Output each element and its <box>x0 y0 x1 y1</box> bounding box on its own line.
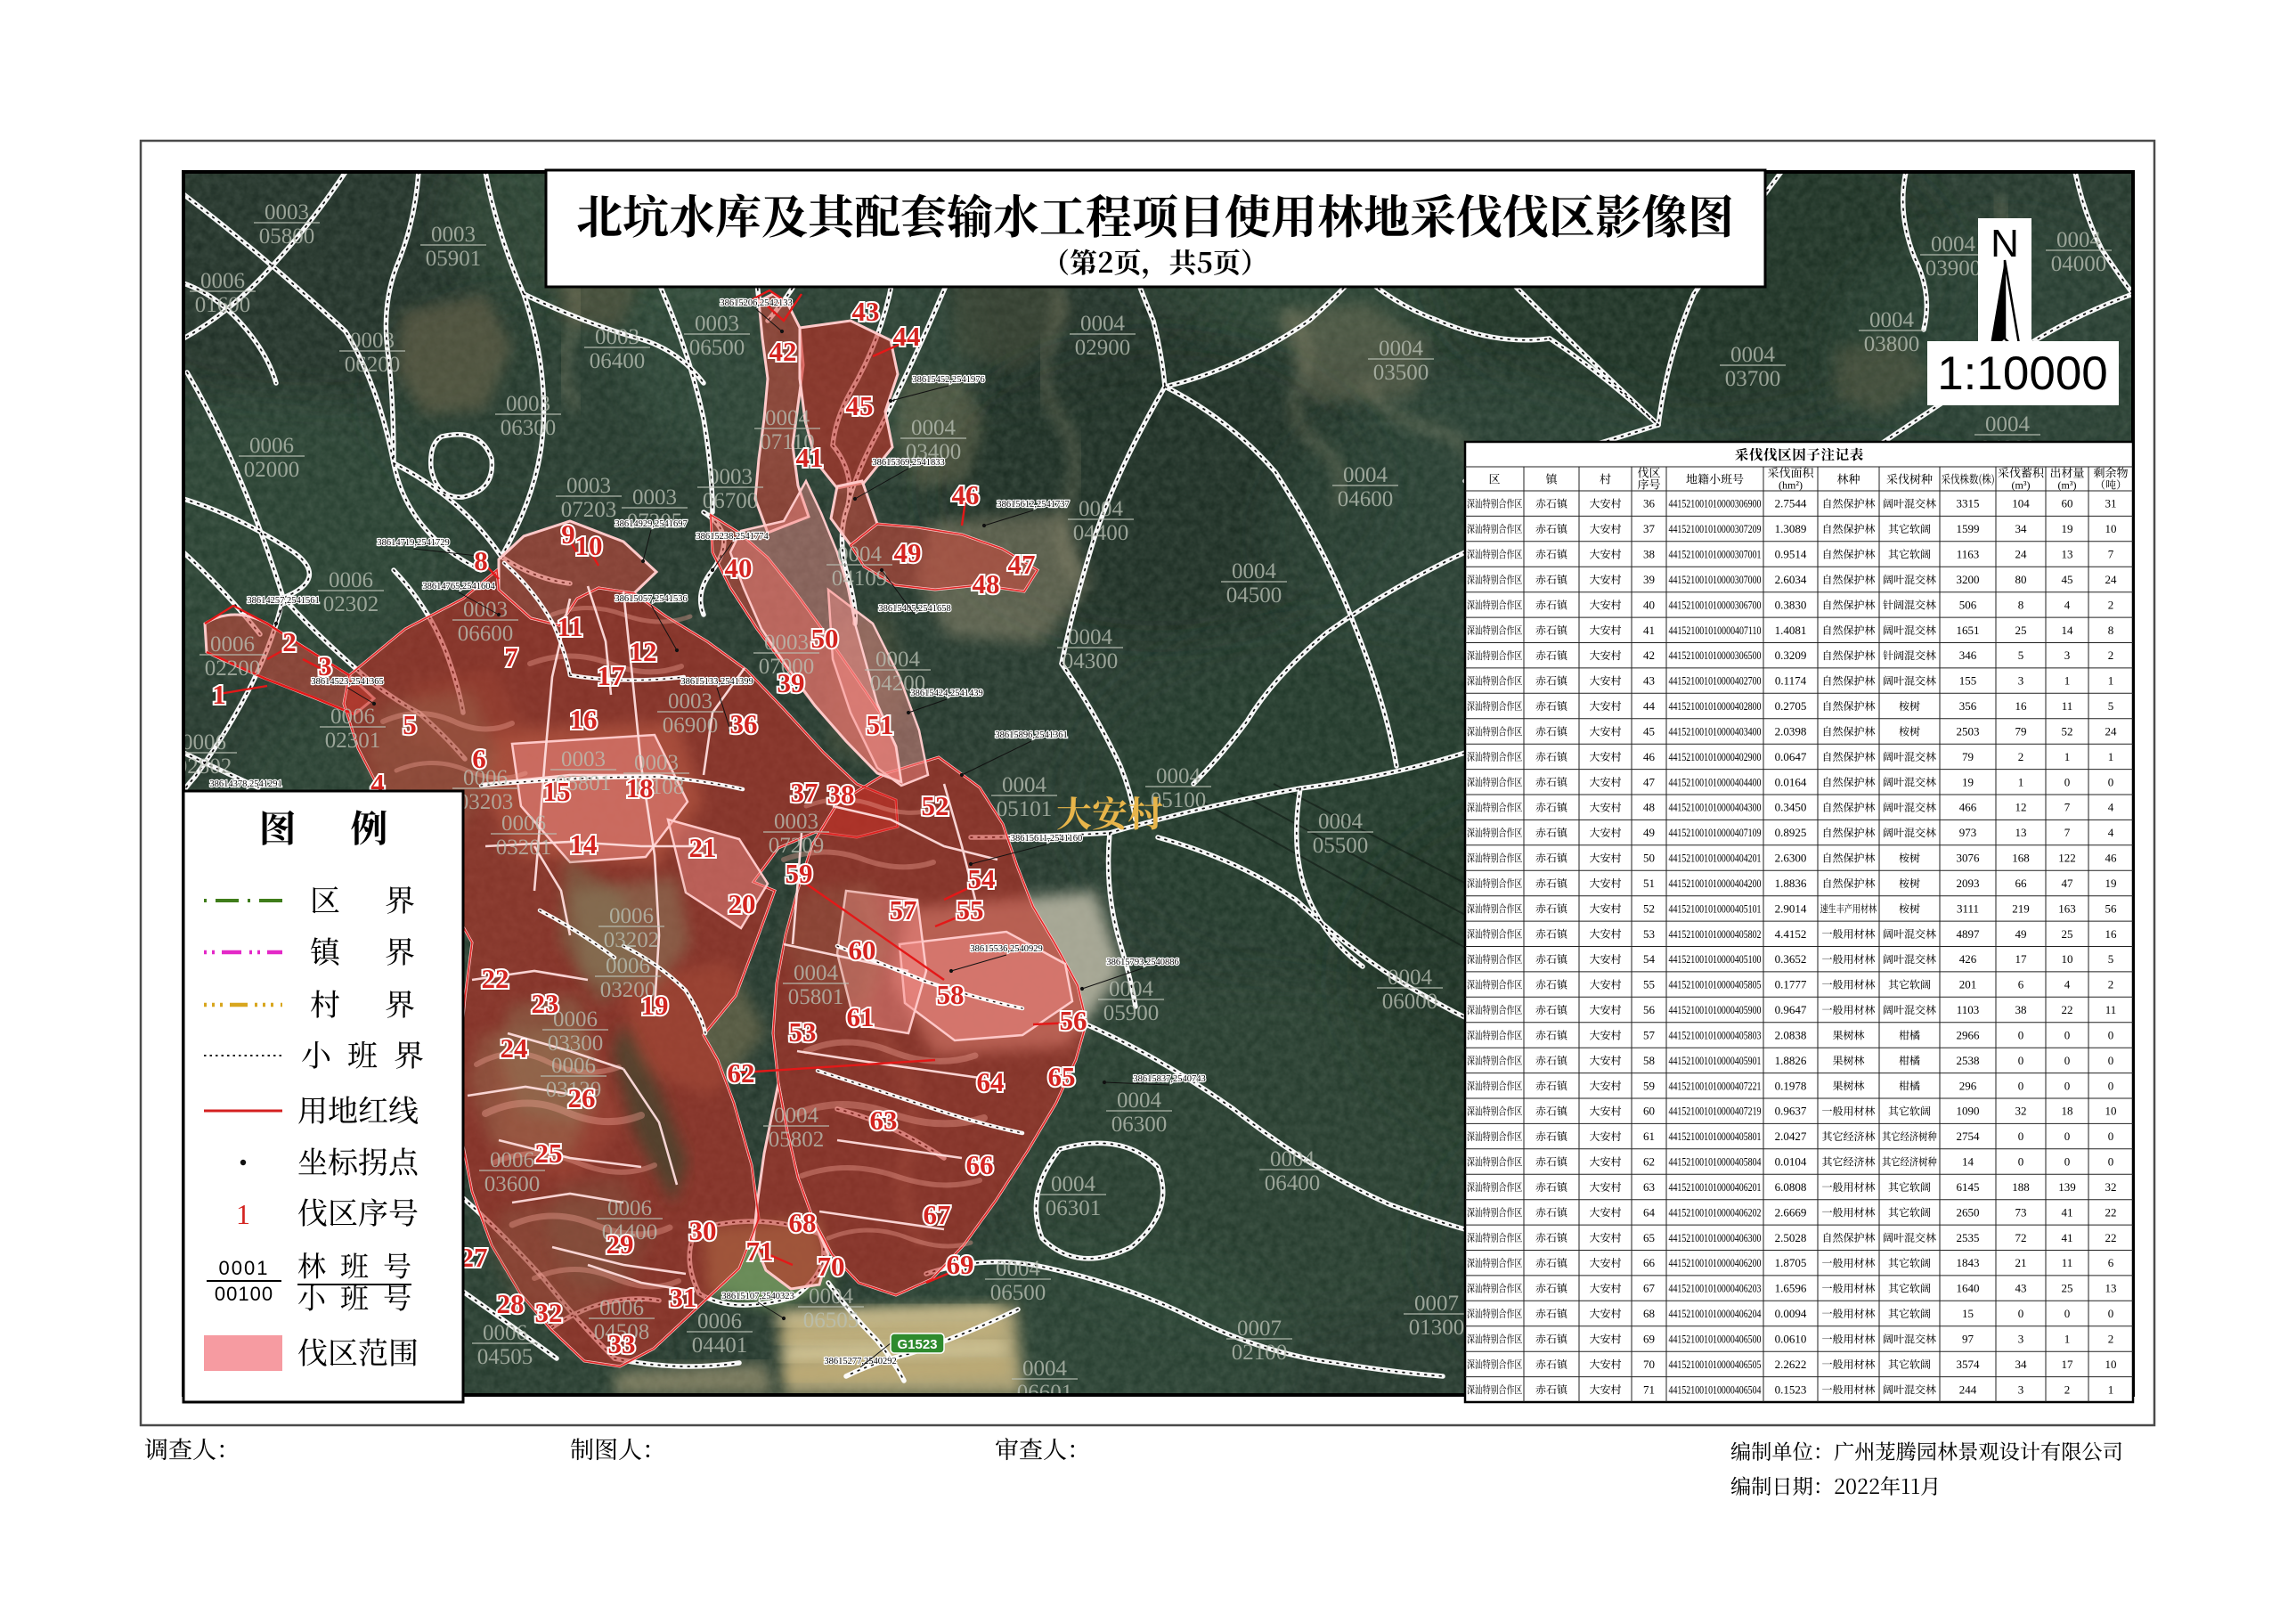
svg-text:60: 60 <box>849 934 876 966</box>
svg-text:0.0610: 0.0610 <box>1775 1332 1807 1345</box>
svg-text:69: 69 <box>947 1249 974 1280</box>
svg-text:0003: 0003 <box>566 474 611 498</box>
svg-text:11: 11 <box>2062 1256 2073 1269</box>
svg-text:0004: 0004 <box>809 1285 854 1309</box>
svg-text:17: 17 <box>2062 1358 2074 1371</box>
svg-text:58: 58 <box>937 979 965 1010</box>
svg-text:441521001010000404201: 441521001010000404201 <box>1669 852 1762 865</box>
svg-text:0007: 0007 <box>1414 1292 1459 1316</box>
svg-text:31: 31 <box>670 1282 697 1313</box>
svg-text:16: 16 <box>2105 927 2118 941</box>
svg-text:1163: 1163 <box>1957 548 1980 561</box>
svg-text:4: 4 <box>2064 598 2071 611</box>
svg-text:23: 23 <box>532 988 559 1019</box>
svg-text:441521001010000402700: 441521001010000402700 <box>1669 674 1762 688</box>
svg-text:06400: 06400 <box>590 349 646 373</box>
svg-text:22: 22 <box>482 963 509 994</box>
svg-text:39: 39 <box>778 667 805 698</box>
svg-text:06400: 06400 <box>1265 1171 1321 1195</box>
svg-text:02000: 02000 <box>244 458 300 482</box>
svg-text:441521001010000307001: 441521001010000307001 <box>1669 548 1762 561</box>
svg-text:38615107,2540323: 38615107,2540323 <box>721 1292 794 1301</box>
svg-text:46: 46 <box>2105 852 2118 865</box>
svg-text:2.7544: 2.7544 <box>1775 497 1807 510</box>
svg-text:03203: 03203 <box>458 790 514 814</box>
svg-text:69: 69 <box>1643 1332 1655 1345</box>
svg-text:38615837,2540743: 38615837,2540743 <box>1133 1074 1205 1084</box>
svg-text:38614378,2541291: 38614378,2541291 <box>209 779 281 789</box>
svg-text:2535: 2535 <box>1957 1231 1980 1244</box>
svg-text:4897: 4897 <box>1957 927 1981 941</box>
svg-text:1.8705: 1.8705 <box>1775 1256 1807 1269</box>
svg-text:24: 24 <box>2105 724 2118 738</box>
svg-text:8: 8 <box>2018 598 2024 611</box>
svg-text:38614719,2541729: 38614719,2541729 <box>377 538 449 548</box>
svg-text:0006: 0006 <box>210 632 255 657</box>
svg-text:0004: 0004 <box>1051 1172 1096 1196</box>
svg-text:0: 0 <box>2108 1130 2114 1143</box>
svg-text:66: 66 <box>2015 877 2028 890</box>
svg-text:19: 19 <box>641 990 669 1021</box>
svg-text:05900: 05900 <box>1103 1001 1160 1025</box>
svg-text:0003: 0003 <box>350 329 395 353</box>
svg-text:38615612,2541737: 38615612,2541737 <box>997 500 1069 510</box>
svg-text:3: 3 <box>2018 1382 2024 1396</box>
svg-text:49: 49 <box>2015 927 2027 941</box>
svg-text:3: 3 <box>2018 1332 2024 1345</box>
svg-text:441521001010000405900: 441521001010000405900 <box>1669 1003 1762 1016</box>
svg-text:1: 1 <box>212 679 226 710</box>
svg-text:0004: 0004 <box>794 961 839 985</box>
svg-text:3200: 3200 <box>1957 573 1980 586</box>
svg-text:0: 0 <box>2108 775 2114 788</box>
svg-text:441521001010000406200: 441521001010000406200 <box>1669 1256 1762 1269</box>
svg-text:0006: 0006 <box>330 705 375 729</box>
svg-text:0: 0 <box>2108 1155 2114 1169</box>
svg-text:13: 13 <box>2015 826 2027 839</box>
svg-text:0004: 0004 <box>1869 308 1915 332</box>
svg-text:(hm²): (hm²) <box>1779 479 1803 492</box>
svg-text:441521001010000306500: 441521001010000306500 <box>1669 648 1762 662</box>
svg-text:0.2705: 0.2705 <box>1775 699 1807 713</box>
svg-text:56: 56 <box>1060 1005 1087 1036</box>
svg-text:03202: 03202 <box>604 928 660 952</box>
svg-text:0: 0 <box>2018 1155 2024 1169</box>
svg-text:06505: 06505 <box>803 1309 859 1333</box>
svg-text:10: 10 <box>2105 1105 2117 1118</box>
svg-text:441521001010000405101: 441521001010000405101 <box>1669 901 1762 915</box>
svg-text:38615424,2541439: 38615424,2541439 <box>910 689 982 698</box>
svg-text:0006: 0006 <box>697 1309 742 1333</box>
svg-text:1:10000: 1:10000 <box>1937 347 2108 400</box>
svg-text:36: 36 <box>730 708 758 739</box>
svg-text:2538: 2538 <box>1957 1054 1980 1067</box>
svg-text:0004: 0004 <box>1318 810 1364 834</box>
svg-text:2.6669: 2.6669 <box>1775 1205 1807 1219</box>
svg-text:1: 1 <box>236 1198 250 1230</box>
svg-text:38615536,2540929: 38615536,2540929 <box>970 944 1042 954</box>
svg-text:49: 49 <box>1643 826 1655 839</box>
svg-text:2650: 2650 <box>1957 1205 1980 1219</box>
svg-text:0.0094: 0.0094 <box>1775 1307 1807 1320</box>
svg-text:42: 42 <box>1643 648 1655 662</box>
svg-text:46: 46 <box>1643 750 1656 763</box>
svg-text:03500: 03500 <box>1373 361 1429 385</box>
svg-text:0006: 0006 <box>606 954 650 978</box>
svg-text:06000: 06000 <box>1382 990 1438 1014</box>
svg-text:0003: 0003 <box>708 465 753 489</box>
svg-text:04505: 04505 <box>477 1345 533 1369</box>
svg-text:441521001010000407219: 441521001010000407219 <box>1669 1105 1762 1118</box>
svg-text:0.9647: 0.9647 <box>1775 1003 1807 1016</box>
svg-text:10: 10 <box>2105 1358 2117 1371</box>
svg-text:(m³): (m³) <box>2058 479 2077 492</box>
svg-text:441521001010000406203: 441521001010000406203 <box>1669 1282 1762 1295</box>
svg-text:5: 5 <box>2108 699 2114 713</box>
svg-text:4: 4 <box>2108 801 2114 814</box>
svg-text:0.3830: 0.3830 <box>1775 598 1807 611</box>
svg-text:0: 0 <box>2108 1079 2114 1092</box>
svg-text:0006: 0006 <box>182 730 226 754</box>
svg-text:47: 47 <box>1643 775 1656 788</box>
svg-text:10: 10 <box>2105 522 2117 535</box>
svg-text:66: 66 <box>1643 1256 1656 1269</box>
svg-text:4: 4 <box>2064 978 2071 991</box>
svg-text:25: 25 <box>2062 927 2073 941</box>
svg-text:6: 6 <box>2108 1256 2114 1269</box>
svg-text:52: 52 <box>922 790 949 821</box>
svg-text:441521001010000404400: 441521001010000404400 <box>1669 775 1762 788</box>
svg-text:05500: 05500 <box>1313 834 1369 858</box>
svg-text:0004: 0004 <box>1080 312 1126 336</box>
svg-text:13: 13 <box>2062 548 2073 561</box>
svg-text:05802: 05802 <box>769 1128 825 1152</box>
svg-text:2.9014: 2.9014 <box>1775 901 1807 915</box>
svg-text:441521001010000406504: 441521001010000406504 <box>1669 1382 1762 1396</box>
svg-text:34: 34 <box>2015 522 2028 535</box>
svg-text:06900: 06900 <box>663 714 719 738</box>
svg-text:68: 68 <box>1643 1307 1655 1320</box>
svg-text:0: 0 <box>2018 1079 2024 1092</box>
svg-text:11: 11 <box>557 611 582 642</box>
svg-text:72: 72 <box>2015 1231 2027 1244</box>
svg-text:0004: 0004 <box>1002 773 1047 797</box>
svg-text:0.3450: 0.3450 <box>1775 801 1807 814</box>
svg-text:49: 49 <box>894 537 922 568</box>
svg-text:441521001010000307000: 441521001010000307000 <box>1669 573 1762 586</box>
svg-text:22: 22 <box>2105 1231 2117 1244</box>
svg-text:3: 3 <box>318 650 332 681</box>
svg-text:973: 973 <box>1959 826 1977 839</box>
svg-text:32: 32 <box>2105 1180 2117 1194</box>
svg-text:34: 34 <box>2015 1358 2028 1371</box>
svg-text:441521001010000405100: 441521001010000405100 <box>1669 952 1762 966</box>
svg-text:38: 38 <box>2015 1003 2027 1016</box>
svg-text:0.9514: 0.9514 <box>1775 548 1807 561</box>
svg-text:346: 346 <box>1959 648 1977 662</box>
svg-text:1: 1 <box>2064 674 2071 688</box>
svg-text:53: 53 <box>789 1016 817 1048</box>
svg-text:03201: 03201 <box>496 836 552 860</box>
svg-text:441521001010000405805: 441521001010000405805 <box>1669 978 1762 991</box>
svg-text:22: 22 <box>2105 1205 2117 1219</box>
svg-text:22: 22 <box>2062 1003 2073 1016</box>
svg-text:16: 16 <box>2015 699 2028 713</box>
svg-text:62: 62 <box>728 1057 755 1089</box>
svg-text:18: 18 <box>2062 1105 2073 1118</box>
svg-text:06200: 06200 <box>345 353 401 377</box>
svg-text:04109: 04109 <box>832 567 888 591</box>
svg-text:0004: 0004 <box>837 542 883 567</box>
svg-text:38614929,2541697: 38614929,2541697 <box>615 519 687 529</box>
svg-text:38614765,2541604: 38614765,2541604 <box>422 582 495 591</box>
svg-text:44: 44 <box>1643 699 1656 713</box>
svg-text:441521001010000404200: 441521001010000404200 <box>1669 877 1762 890</box>
svg-text:02900: 02900 <box>1075 336 1131 360</box>
svg-text:2.2622: 2.2622 <box>1775 1358 1807 1371</box>
svg-text:N: N <box>1991 222 2019 265</box>
svg-text:441521001010000403400: 441521001010000403400 <box>1669 724 1762 738</box>
svg-text:1.3089: 1.3089 <box>1775 522 1807 535</box>
svg-text:46: 46 <box>952 479 980 510</box>
svg-text:219: 219 <box>2012 901 2030 915</box>
svg-text:03800: 03800 <box>1864 332 1920 356</box>
svg-text:52: 52 <box>2062 724 2073 738</box>
svg-text:1: 1 <box>2108 674 2114 688</box>
svg-text:1651: 1651 <box>1957 624 1980 637</box>
svg-text:79: 79 <box>2015 724 2027 738</box>
svg-text:38615793,2540886: 38615793,2540886 <box>1106 958 1178 967</box>
svg-text:06500: 06500 <box>689 336 745 360</box>
svg-text:188: 188 <box>2012 1180 2030 1194</box>
svg-text:1: 1 <box>2108 750 2114 763</box>
svg-text:05100: 05100 <box>1151 788 1207 812</box>
svg-text:0006: 0006 <box>609 904 654 928</box>
svg-text:1: 1 <box>2064 750 2071 763</box>
svg-text:104: 104 <box>2012 497 2030 510</box>
svg-text:441521001010000405801: 441521001010000405801 <box>1669 1130 1762 1143</box>
svg-text:0004: 0004 <box>1022 1357 1068 1381</box>
svg-text:65: 65 <box>1643 1231 1655 1244</box>
svg-text:0: 0 <box>2064 1054 2071 1067</box>
svg-text:5: 5 <box>403 709 417 740</box>
svg-text:441521001010000405803: 441521001010000405803 <box>1669 1028 1762 1041</box>
svg-text:06301: 06301 <box>1046 1196 1102 1220</box>
svg-text:0: 0 <box>2018 1130 2024 1143</box>
svg-text:0004: 0004 <box>1931 232 1976 257</box>
svg-text:30: 30 <box>689 1215 717 1246</box>
svg-text:7: 7 <box>2064 801 2071 814</box>
svg-text:38615206,2542133: 38615206,2542133 <box>720 298 792 308</box>
svg-text:0003: 0003 <box>463 598 508 622</box>
svg-text:0003: 0003 <box>595 325 639 349</box>
svg-text:0006: 0006 <box>200 269 245 293</box>
svg-text:1103: 1103 <box>1957 1003 1980 1016</box>
svg-text:38: 38 <box>1643 548 1655 561</box>
svg-text:06300: 06300 <box>501 416 557 440</box>
svg-text:0: 0 <box>2018 1054 2024 1067</box>
svg-text:0004: 0004 <box>1156 764 1201 788</box>
svg-text:2: 2 <box>282 626 297 657</box>
svg-text:33: 33 <box>608 1328 636 1359</box>
svg-text:60: 60 <box>2062 497 2073 510</box>
svg-text:0: 0 <box>2018 1028 2024 1041</box>
svg-text:0006: 0006 <box>501 811 546 836</box>
svg-text:0004: 0004 <box>1270 1147 1315 1171</box>
svg-text:97: 97 <box>1962 1332 1974 1345</box>
svg-text:0003: 0003 <box>561 747 606 771</box>
svg-text:38: 38 <box>827 779 855 810</box>
svg-text:2966: 2966 <box>1957 1028 1981 1041</box>
svg-text:55: 55 <box>957 894 984 926</box>
svg-text:0.8925: 0.8925 <box>1775 826 1807 839</box>
svg-text:8: 8 <box>474 545 488 576</box>
svg-text:15: 15 <box>1962 1307 1974 1320</box>
svg-text:7: 7 <box>2064 826 2071 839</box>
svg-text:42: 42 <box>769 336 797 367</box>
svg-text:466: 466 <box>1959 801 1977 814</box>
svg-text:0: 0 <box>2064 1307 2071 1320</box>
svg-text:24: 24 <box>2105 573 2118 586</box>
svg-text:61: 61 <box>1643 1130 1655 1143</box>
svg-text:02301: 02301 <box>325 729 381 753</box>
svg-text:28: 28 <box>497 1288 525 1319</box>
svg-text:03300: 03300 <box>548 1032 604 1056</box>
svg-text:26: 26 <box>568 1082 596 1113</box>
svg-text:38615896,2541361: 38615896,2541361 <box>995 730 1067 740</box>
svg-text:3111: 3111 <box>1957 901 1979 915</box>
svg-text:0003: 0003 <box>668 689 712 714</box>
svg-text:0004: 0004 <box>774 1104 819 1128</box>
svg-text:07209: 07209 <box>769 834 825 858</box>
svg-text:0006: 0006 <box>483 1321 527 1345</box>
svg-text:441521001010000306900: 441521001010000306900 <box>1669 497 1762 510</box>
svg-text:15: 15 <box>543 776 571 807</box>
svg-text:0004: 0004 <box>1730 343 1776 367</box>
svg-text:0006: 0006 <box>329 568 373 592</box>
svg-text:201: 201 <box>1959 978 1977 991</box>
svg-text:1090: 1090 <box>1957 1105 1980 1118</box>
svg-text:71: 71 <box>1643 1382 1655 1396</box>
svg-text:04500: 04500 <box>1226 583 1282 608</box>
svg-text:1: 1 <box>2108 1382 2114 1396</box>
svg-text:0.1978: 0.1978 <box>1775 1079 1807 1092</box>
svg-text:55: 55 <box>1643 978 1655 991</box>
svg-text:29: 29 <box>607 1228 634 1260</box>
svg-text:51: 51 <box>1643 877 1655 890</box>
svg-text:2: 2 <box>2108 1332 2114 1345</box>
svg-text:79: 79 <box>1962 750 1974 763</box>
svg-text:3: 3 <box>2018 674 2024 688</box>
svg-text:06300: 06300 <box>1111 1113 1168 1137</box>
svg-text:04400: 04400 <box>1073 521 1129 545</box>
svg-text:506: 506 <box>1959 598 1977 611</box>
svg-text:21: 21 <box>689 832 717 863</box>
svg-text:80: 80 <box>2015 573 2027 586</box>
svg-text:0.9637: 0.9637 <box>1775 1105 1807 1118</box>
svg-text:67: 67 <box>924 1199 951 1230</box>
svg-text:0.1174: 0.1174 <box>1775 674 1807 688</box>
svg-text:0004: 0004 <box>911 416 957 440</box>
svg-text:2: 2 <box>2108 648 2114 662</box>
svg-text:13: 13 <box>2105 1282 2117 1295</box>
svg-text:54: 54 <box>1643 952 1656 966</box>
svg-text:58: 58 <box>1643 1054 1655 1067</box>
svg-text:20: 20 <box>729 888 756 919</box>
svg-text:38615369,2541833: 38615369,2541833 <box>872 458 944 468</box>
svg-text:441521001010000407109: 441521001010000407109 <box>1669 826 1762 839</box>
svg-text:19: 19 <box>1962 775 1974 788</box>
svg-text:65: 65 <box>1048 1061 1076 1092</box>
svg-text:02302: 02302 <box>323 592 379 616</box>
svg-text:0004: 0004 <box>1388 966 1433 990</box>
svg-text:17: 17 <box>2015 952 2028 966</box>
svg-text:50: 50 <box>1643 852 1655 865</box>
svg-text:47: 47 <box>2062 877 2074 890</box>
svg-text:67: 67 <box>1643 1282 1656 1295</box>
svg-text:2.0838: 2.0838 <box>1775 1028 1807 1041</box>
svg-text:0.1523: 0.1523 <box>1775 1382 1807 1396</box>
svg-text:02200: 02200 <box>205 657 261 681</box>
svg-text:63: 63 <box>1643 1180 1655 1194</box>
svg-text:64: 64 <box>977 1066 1005 1097</box>
svg-text:43: 43 <box>852 296 880 327</box>
svg-text:43: 43 <box>1643 674 1655 688</box>
svg-text:25: 25 <box>2015 624 2027 637</box>
svg-text:41: 41 <box>1643 624 1655 637</box>
svg-text:0001: 0001 <box>219 1257 270 1279</box>
svg-text:50: 50 <box>811 623 839 654</box>
svg-text:0: 0 <box>2064 1130 2071 1143</box>
svg-text:45: 45 <box>2062 573 2073 586</box>
svg-text:7: 7 <box>2108 548 2114 561</box>
svg-text:0004: 0004 <box>875 648 921 672</box>
svg-text:2: 2 <box>2108 978 2114 991</box>
svg-text:0004: 0004 <box>1109 977 1154 1001</box>
svg-text:14: 14 <box>2062 624 2074 637</box>
svg-text:06500: 06500 <box>990 1281 1046 1305</box>
svg-text:41: 41 <box>2062 1205 2073 1219</box>
svg-text:1: 1 <box>2018 775 2024 788</box>
svg-text:48: 48 <box>973 568 1000 599</box>
svg-text:0003: 0003 <box>634 751 679 775</box>
svg-text:0003: 0003 <box>265 200 309 224</box>
svg-text:38615452,2541976: 38615452,2541976 <box>912 375 984 385</box>
svg-text:0006: 0006 <box>599 1296 644 1320</box>
svg-text:70: 70 <box>1643 1358 1655 1371</box>
svg-text:11: 11 <box>2105 1003 2117 1016</box>
svg-text:441521001010000406500: 441521001010000406500 <box>1669 1332 1762 1345</box>
svg-text:01600: 01600 <box>195 293 251 317</box>
svg-text:61: 61 <box>847 1001 875 1032</box>
svg-text:38615611,2541160: 38615611,2541160 <box>1011 834 1083 844</box>
svg-text:12: 12 <box>630 636 657 667</box>
svg-text:41: 41 <box>796 442 824 473</box>
svg-text:57: 57 <box>890 894 917 926</box>
svg-text:441521001010000406300: 441521001010000406300 <box>1669 1231 1762 1244</box>
svg-text:5: 5 <box>2108 952 2114 966</box>
svg-text:0: 0 <box>2108 1307 2114 1320</box>
svg-text:0006: 0006 <box>607 1196 652 1220</box>
svg-text:06700: 06700 <box>703 489 759 513</box>
svg-text:1: 1 <box>2064 1332 2071 1345</box>
svg-text:0003: 0003 <box>774 810 818 834</box>
svg-text:37: 37 <box>1643 522 1656 535</box>
svg-text:0.3652: 0.3652 <box>1775 952 1807 966</box>
svg-text:0: 0 <box>2064 1028 2071 1041</box>
svg-text:10: 10 <box>2062 952 2073 966</box>
svg-text:6.0808: 6.0808 <box>1775 1180 1807 1194</box>
